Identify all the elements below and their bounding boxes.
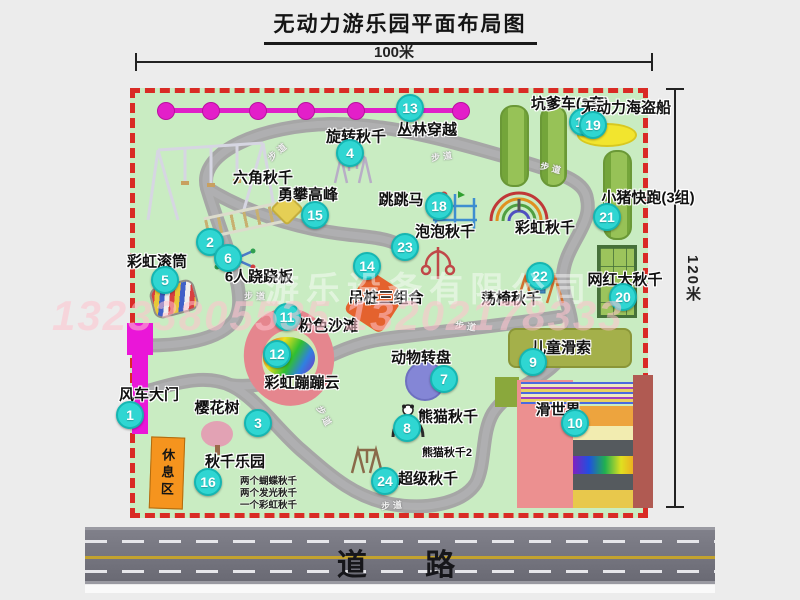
attraction-label: 勇攀高峰 — [278, 184, 338, 205]
attraction-label: 樱花树 — [194, 397, 239, 418]
cherry-tree-icon — [201, 421, 233, 447]
rest-area: 休息区 — [149, 436, 185, 509]
attraction-badge: 9 — [519, 348, 547, 376]
height-dimension-tick-top — [666, 88, 684, 90]
attraction-badge: 24 — [371, 467, 399, 495]
zipline-dot — [249, 102, 267, 120]
map-label: 彩虹秋千 — [515, 217, 575, 238]
attraction-label: 熊猫秋千 — [418, 406, 478, 427]
attraction-badge: 7 — [430, 365, 458, 393]
kart-strip — [500, 105, 529, 187]
slide-world-green — [495, 377, 519, 407]
attraction-badge: 6 — [214, 244, 242, 272]
slide-world-wall — [633, 375, 653, 508]
attraction-badge: 16 — [194, 468, 222, 496]
attraction-badge: 21 — [593, 203, 621, 231]
zipline-dot — [347, 102, 365, 120]
attraction-label: 彩虹蹦蹦云 — [264, 372, 339, 393]
attraction-label: 超级秋千 — [398, 468, 458, 489]
attraction-badge: 13 — [396, 94, 424, 122]
attraction-badge: 4 — [336, 139, 364, 167]
attraction-badge: 10 — [561, 409, 589, 437]
attraction-note: 一个彩虹秋千 — [240, 497, 297, 511]
height-dimension-tick-bottom — [666, 506, 684, 508]
attraction-badge: 15 — [301, 201, 329, 229]
title-wrap: 无动力游乐园平面布局图 — [0, 8, 800, 45]
width-dimension-label: 100米 — [135, 41, 653, 62]
attraction-label: 小猪快跑(3组) — [601, 187, 694, 208]
slide-block — [573, 490, 637, 508]
zipline-dot — [297, 102, 315, 120]
attraction-badge: 12 — [263, 340, 291, 368]
walkway-label: 步道 — [380, 497, 405, 512]
height-dimension-line — [674, 88, 676, 508]
road-label: 道 路 — [85, 540, 715, 584]
road: 道 路 — [85, 527, 715, 584]
slide-block — [573, 440, 637, 456]
attraction-badge: 18 — [425, 192, 453, 220]
slide-block — [573, 456, 637, 474]
attraction-badge: 8 — [393, 414, 421, 442]
watermark-phone: 13233805535 13202178333 — [52, 292, 624, 340]
page: 无动力游乐园平面布局图 100米 120米 — [0, 0, 800, 600]
zipline-dot — [202, 102, 220, 120]
zipline-dot — [157, 102, 175, 120]
map-label: 熊猫秋千2 — [422, 444, 472, 460]
attraction-badge: 3 — [244, 409, 272, 437]
attraction-label: 跳跳马 — [378, 189, 423, 210]
page-title: 无动力游乐园平面布局图 — [264, 8, 537, 45]
attraction-badge: 19 — [579, 111, 607, 139]
attraction-label: 泡泡秋千 — [415, 221, 475, 242]
road-shoulder — [85, 585, 715, 593]
zipline-dot — [452, 102, 470, 120]
attraction-badge: 23 — [391, 233, 419, 261]
slide-block — [573, 474, 637, 490]
height-dimension-label: 120米 — [682, 255, 703, 303]
attraction-badge: 1 — [116, 401, 144, 429]
attraction-badge: 5 — [151, 266, 179, 294]
